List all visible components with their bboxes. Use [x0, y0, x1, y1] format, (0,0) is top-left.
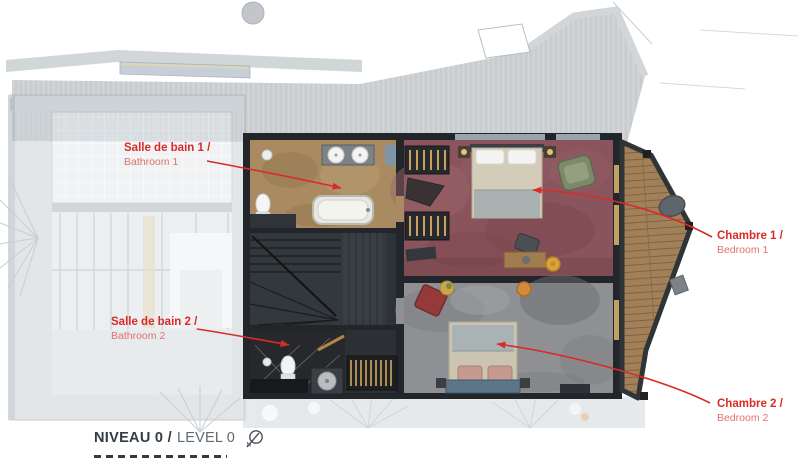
annotation-label-fr: Chambre 2 / — [717, 398, 783, 411]
level-title: NIVEAU 0 / LEVEL 0 N — [94, 430, 267, 452]
bedroom-1-room — [390, 134, 613, 276]
chimney-marker — [242, 2, 264, 24]
floor-plan-page: Salle de bain 1 / Bathroom 1 Salle de ba… — [0, 0, 800, 465]
pendant-light — [262, 150, 272, 160]
plant-pot — [440, 281, 454, 295]
floor-plan-rendering — [0, 0, 800, 465]
pendant-light-2 — [263, 358, 271, 366]
bench-2 — [560, 384, 590, 393]
annotation-label-en: Bedroom 1 — [717, 244, 783, 256]
title-dashed-underline — [94, 455, 227, 458]
balcony — [622, 142, 693, 400]
ghost-bottom-strip — [243, 395, 645, 428]
bedroom-2-room — [395, 275, 620, 393]
shower — [311, 368, 343, 394]
shelf-unit-bottom — [405, 212, 449, 240]
bed-1 — [458, 144, 556, 218]
toilet-1 — [256, 194, 270, 214]
annotation-bathroom-2: Salle de bain 2 / Bathroom 2 — [111, 316, 197, 342]
annotation-bedroom-1: Chambre 1 / Bedroom 1 — [717, 230, 783, 256]
compass-north-label: N — [247, 442, 252, 449]
bath2-counter — [250, 379, 308, 393]
annotation-label-fr: Salle de bain 1 / — [124, 142, 210, 155]
shelf-unit-top — [405, 146, 449, 174]
hall-wardrobe — [345, 330, 397, 393]
bed-2 — [436, 322, 530, 393]
pillow — [476, 150, 504, 164]
staircase — [250, 233, 396, 325]
annotation-bedroom-2: Chambre 2 / Bedroom 2 — [717, 398, 783, 424]
compass-icon: N — [243, 428, 267, 452]
active-level-plan — [243, 133, 622, 399]
annotation-label-en: Bedroom 2 — [717, 412, 783, 424]
toilet-2 — [281, 356, 295, 376]
annotation-label-en: Bathroom 2 — [111, 330, 197, 342]
bath1-counter — [250, 214, 296, 228]
bath1-cabinet — [385, 145, 396, 165]
bathroom-2-room — [250, 330, 345, 394]
annotation-label-fr: Salle de bain 2 / — [111, 316, 197, 329]
level-title-fr: NIVEAU 0 / — [94, 430, 172, 446]
level-title-en: LEVEL 0 — [177, 430, 235, 446]
stool-orange — [517, 282, 531, 296]
annotation-label-en: Bathroom 1 — [124, 156, 210, 168]
pillow — [508, 150, 536, 164]
annotation-label-fr: Chambre 1 / — [717, 230, 783, 243]
annotation-bathroom-1: Salle de bain 1 / Bathroom 1 — [124, 142, 210, 168]
